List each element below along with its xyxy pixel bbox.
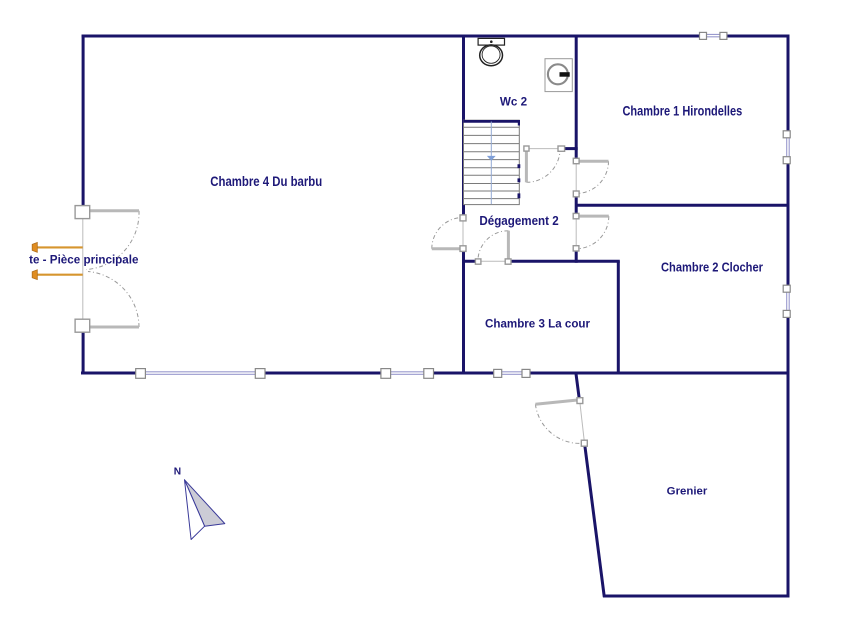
svg-text:Chambre 2 Clocher: Chambre 2 Clocher bbox=[661, 260, 763, 274]
svg-text:Wc 2: Wc 2 bbox=[500, 95, 528, 108]
svg-text:Chambre 4 Du barbu: Chambre 4 Du barbu bbox=[210, 174, 322, 189]
svg-text:Chambre 3 La cour: Chambre 3 La cour bbox=[485, 317, 590, 331]
svg-text:Dégagement 2: Dégagement 2 bbox=[479, 213, 558, 228]
svg-text:N: N bbox=[174, 467, 181, 478]
svg-text:Grenier: Grenier bbox=[667, 485, 708, 497]
svg-text:Chambre 1 Hirondelles: Chambre 1 Hirondelles bbox=[623, 104, 743, 119]
svg-text:te - Pièce principale: te - Pièce principale bbox=[29, 255, 138, 267]
